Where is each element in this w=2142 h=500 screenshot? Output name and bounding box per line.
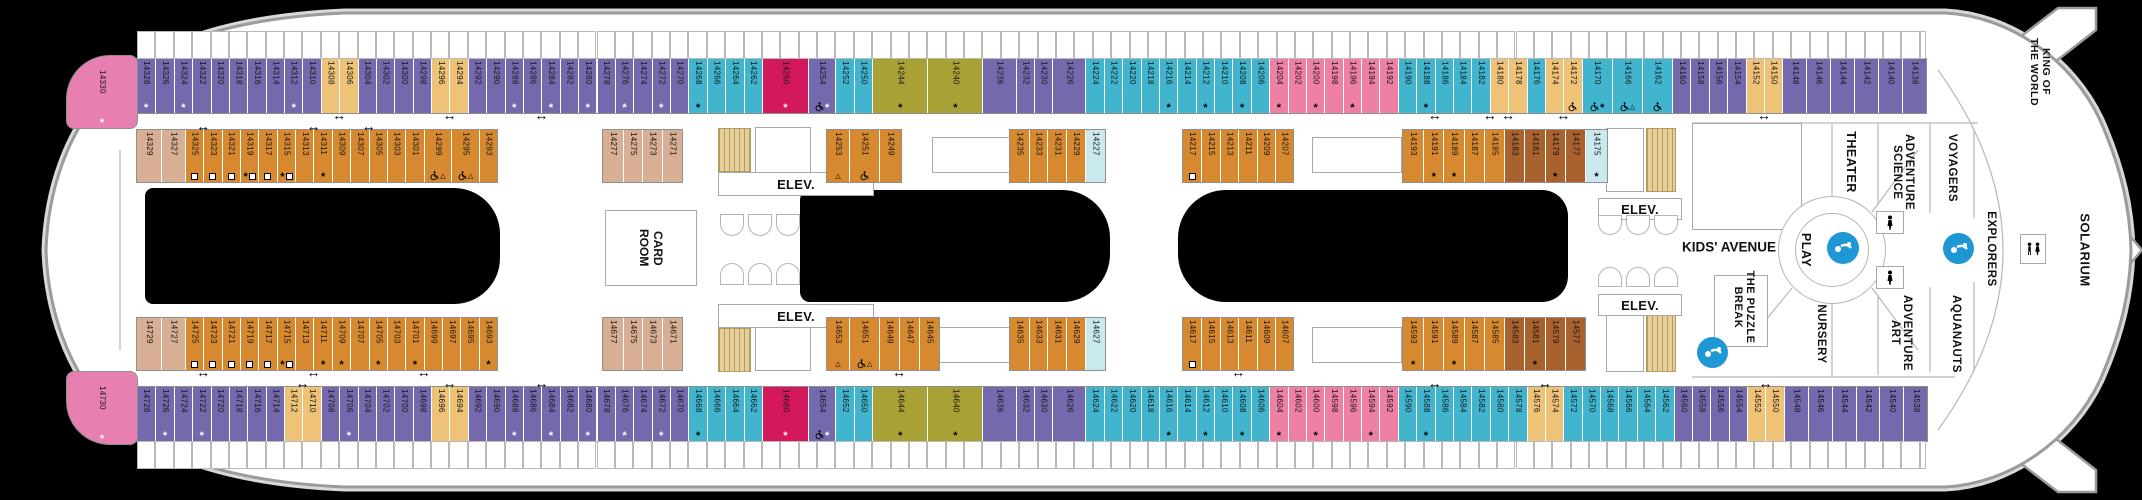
cabin-14566[interactable]: 14566 xyxy=(1618,387,1636,441)
cabin-14622[interactable]: 14622 xyxy=(1104,387,1122,441)
cabin-14184[interactable]: 14184 xyxy=(1453,59,1471,113)
cabin-14546[interactable]: 14546 xyxy=(1808,387,1832,441)
cabin-14277[interactable]: 14277 xyxy=(603,130,623,182)
cabin-14307[interactable]: 14307 xyxy=(350,130,368,182)
cabin-14647[interactable]: 14647 xyxy=(899,318,919,370)
cabin-14548[interactable]: 14548 xyxy=(1784,387,1808,441)
cabin-14313[interactable]: 14313 xyxy=(295,130,313,182)
cabin-14668[interactable]: 14668* xyxy=(688,387,706,441)
cabin-14721[interactable]: 14721 xyxy=(222,318,240,370)
cabin-14224[interactable]: 14224 xyxy=(1085,59,1103,113)
cabin-14156[interactable]: 14156 xyxy=(1709,59,1727,113)
cabin-14626[interactable]: 14626 xyxy=(1052,387,1085,441)
cabin-14604[interactable]: 14604* xyxy=(1269,387,1287,441)
cabin-14230[interactable]: 14230 xyxy=(1034,59,1052,113)
cabin-14700[interactable]: 14700 xyxy=(394,387,412,441)
cabin-14675[interactable]: 14675 xyxy=(623,318,643,370)
cabin-14186[interactable]: 14186 xyxy=(1435,59,1453,113)
balcony-cell xyxy=(1497,31,1515,59)
cabin-14148[interactable]: 14148 xyxy=(1782,59,1806,113)
cabin-14578[interactable]: 14578 xyxy=(1508,387,1526,441)
cabin-14542[interactable]: 14542 xyxy=(1856,387,1880,441)
cabin-14305[interactable]: 14305 xyxy=(369,130,387,182)
balcony-cell xyxy=(1736,441,1754,469)
cabin-14189[interactable]: 14189* xyxy=(1443,130,1463,182)
cabin-14660[interactable]: 14660* xyxy=(762,387,808,441)
cabin-14694[interactable]: 14694 xyxy=(449,387,467,441)
asterisk-marker: * xyxy=(783,432,787,440)
cabin-14704[interactable]: 14704 xyxy=(358,387,376,441)
cabin-14209[interactable]: 14209 xyxy=(1257,130,1275,182)
cabin-14538[interactable]: 14538 xyxy=(1903,387,1927,441)
cabin-14633[interactable]: 14633 xyxy=(1029,318,1048,370)
cabin-14328[interactable]: 14328* xyxy=(137,59,155,113)
cabin-14323[interactable]: 14323 xyxy=(203,130,221,182)
cabin-14311[interactable]: 14311* xyxy=(313,130,331,182)
cabin-14589[interactable]: 14589* xyxy=(1443,318,1463,370)
cabin-14653[interactable]: 14653△ xyxy=(827,318,849,370)
cabin-14722[interactable]: 14722* xyxy=(192,387,210,441)
cabin-number: 14254 xyxy=(818,61,826,85)
balcony-cell xyxy=(1405,31,1423,59)
cabin-14254[interactable]: 14254* xyxy=(808,59,836,113)
cabin-14260[interactable]: 14260* xyxy=(762,59,808,113)
cabin-14273[interactable]: 14273 xyxy=(642,130,662,182)
cabin-14222[interactable]: 14222 xyxy=(1104,59,1122,113)
cabin-14701[interactable]: 14701* xyxy=(405,318,423,370)
cabin-14709[interactable]: 14709* xyxy=(332,318,350,370)
cabin-14278[interactable]: 14278 xyxy=(597,59,615,113)
cabin-number: 14188 xyxy=(1422,61,1430,85)
cabin-14706[interactable]: 14706* xyxy=(339,387,357,441)
cabin-14596[interactable]: 14596 xyxy=(1343,387,1361,441)
cabin-14309[interactable]: 14309 xyxy=(332,130,350,182)
cabin-14183[interactable]: 14183 xyxy=(1504,130,1524,182)
cabin-14321[interactable]: 14321 xyxy=(222,130,240,182)
cabin-14577[interactable]: 14577 xyxy=(1565,318,1585,370)
cabin-14556[interactable]: 14556 xyxy=(1710,387,1728,441)
cabin-14624[interactable]: 14624 xyxy=(1085,387,1103,441)
cabin-14708[interactable]: 14708 xyxy=(321,387,339,441)
cabin-14226[interactable]: 14226 xyxy=(1052,59,1085,113)
cabin-14298[interactable]: 14298 xyxy=(413,59,431,113)
cabin-14215[interactable]: 14215 xyxy=(1201,130,1219,182)
cabin-14695[interactable]: 14695 xyxy=(460,318,478,370)
cabin-14249[interactable]: 14249 xyxy=(879,130,901,182)
cabin-14725[interactable]: 14725 xyxy=(185,318,203,370)
connecting-door-arrow: ↔ xyxy=(306,120,320,132)
cabin-14684[interactable]: 14684* xyxy=(541,387,559,441)
cabin-14193[interactable]: 14193 xyxy=(1403,130,1423,182)
cabin-14306[interactable]: 14306 xyxy=(339,59,357,113)
cabin-number: 14678 xyxy=(602,389,610,413)
cabin-14540[interactable]: 14540 xyxy=(1879,387,1903,441)
cabin-14674[interactable]: 14674 xyxy=(633,387,651,441)
cabin-14726[interactable]: 14726* xyxy=(155,387,173,441)
cabin-14144[interactable]: 14144 xyxy=(1830,59,1854,113)
cabin-14316[interactable]: 14316 xyxy=(247,59,265,113)
cabin-14717[interactable]: 14717 xyxy=(258,318,276,370)
cabin-14615[interactable]: 14615 xyxy=(1201,318,1219,370)
cabin-14176[interactable]: 14176 xyxy=(1527,59,1545,113)
cabin-14180[interactable]: 14180 xyxy=(1490,59,1508,113)
cabin-14322[interactable]: 14322 xyxy=(192,59,210,113)
cabin-14271[interactable]: 14271 xyxy=(662,130,682,182)
cabin-14617[interactable]: 14617 xyxy=(1183,318,1201,370)
cabin-14583[interactable]: 14583 xyxy=(1504,318,1524,370)
cabin-14618[interactable]: 14618 xyxy=(1141,387,1159,441)
balcony-cell xyxy=(1130,441,1148,469)
cabin-14614[interactable]: 14614 xyxy=(1177,387,1195,441)
restroom-icon xyxy=(1876,211,1904,234)
cabin-14214[interactable]: 14214 xyxy=(1177,59,1195,113)
cabin-14210[interactable]: 14210 xyxy=(1214,59,1232,113)
cabin-14288[interactable]: 14288* xyxy=(505,59,523,113)
cabin-14191[interactable]: 14191* xyxy=(1423,130,1443,182)
cabin-14586[interactable]: 14586 xyxy=(1435,387,1453,441)
cabin-14680[interactable]: 14680* xyxy=(578,387,596,441)
cabin-14550[interactable]: 14550 xyxy=(1765,387,1783,441)
cabin-14177[interactable]: 14177 xyxy=(1565,130,1585,182)
cabin-14645[interactable]: 14645 xyxy=(919,318,939,370)
cabin-14315[interactable]: 14315* xyxy=(277,130,295,182)
cabin-14666[interactable]: 14666 xyxy=(707,387,725,441)
cabin-14211[interactable]: 14211 xyxy=(1238,130,1256,182)
cabin-number: 14729 xyxy=(145,320,153,344)
cabin-14572[interactable]: 14572 xyxy=(1563,387,1581,441)
cabin-14678[interactable]: 14678 xyxy=(597,387,615,441)
cabin-14627[interactable]: 14627 xyxy=(1085,318,1105,370)
cabin-14174[interactable]: 14174 xyxy=(1545,59,1563,113)
cabin-14582[interactable]: 14582 xyxy=(1471,387,1489,441)
cabin-14274[interactable]: 14274 xyxy=(633,59,651,113)
cabin-14314[interactable]: 14314 xyxy=(266,59,284,113)
cabin-number: 14211 xyxy=(1244,132,1252,155)
cabin-14317[interactable]: 14317 xyxy=(258,130,276,182)
cabin-14206[interactable]: 14206 xyxy=(1251,59,1269,113)
cabin-14698[interactable]: 14698 xyxy=(413,387,431,441)
cabin-14602[interactable]: 14602 xyxy=(1288,387,1306,441)
cabin-14664[interactable]: 14664 xyxy=(725,387,743,441)
cabin-14303[interactable]: 14303 xyxy=(387,130,405,182)
cabin-14673[interactable]: 14673 xyxy=(642,318,662,370)
cabin-14699[interactable]: 14699 xyxy=(424,318,442,370)
cabin-14202[interactable]: 14202 xyxy=(1288,59,1306,113)
cabin-number: 14671 xyxy=(668,320,676,344)
cabin-14320[interactable]: 14320 xyxy=(211,59,229,113)
cabin-14140[interactable]: 14140 xyxy=(1878,59,1902,113)
cabin-14290[interactable]: 14290 xyxy=(486,59,504,113)
cabin-14720[interactable]: 14720 xyxy=(211,387,229,441)
balcony-cell xyxy=(1773,441,1791,469)
cabin-14592[interactable]: 14592 xyxy=(1379,387,1397,441)
cabin-14584[interactable]: 14584 xyxy=(1453,387,1471,441)
cabin-14162[interactable]: 14162 xyxy=(1642,59,1672,113)
cabin-14233[interactable]: 14233 xyxy=(1029,130,1048,182)
cabin-14611[interactable]: 14611 xyxy=(1238,318,1256,370)
cabin-14713[interactable]: 14713 xyxy=(295,318,313,370)
cabin-14702[interactable]: 14702 xyxy=(376,387,394,441)
cabin-14154[interactable]: 14154 xyxy=(1727,59,1745,113)
cabin-14231[interactable]: 14231 xyxy=(1047,130,1066,182)
cabin-14217[interactable]: 14217 xyxy=(1183,130,1201,182)
cabin-14194[interactable]: 14194 xyxy=(1361,59,1379,113)
balcony-cell xyxy=(1571,31,1589,59)
cabin-14185[interactable]: 14185 xyxy=(1484,130,1504,182)
cabin-14213[interactable]: 14213 xyxy=(1220,130,1238,182)
cabin-14576[interactable]: 14576 xyxy=(1527,387,1545,441)
cabin-14610[interactable]: 14610 xyxy=(1214,387,1232,441)
cabin-14727[interactable]: 14727 xyxy=(161,318,185,370)
cabin-14632[interactable]: 14632 xyxy=(1016,387,1034,441)
cabin-14640[interactable]: 14640* xyxy=(927,387,982,441)
cabin-14606[interactable]: 14606 xyxy=(1251,387,1269,441)
cabin-14235[interactable]: 14235 xyxy=(1010,130,1029,182)
balcony-cell xyxy=(174,441,192,469)
cabin-14570[interactable]: 14570 xyxy=(1582,387,1600,441)
cabin-14286[interactable]: 14286 xyxy=(523,59,541,113)
cabin-14299[interactable]: 14299△ xyxy=(424,130,452,182)
balcony-cell xyxy=(597,441,615,469)
booth-seat xyxy=(720,263,744,285)
cabin-14295[interactable]: 14295△ xyxy=(451,130,479,182)
cabin-14593[interactable]: 14593* xyxy=(1403,318,1423,370)
cabin-14329[interactable]: 14329 xyxy=(137,130,161,182)
cabin-14300[interactable]: 14300 xyxy=(394,59,412,113)
cabin-14600[interactable]: 14600* xyxy=(1306,387,1324,441)
cabin-14723[interactable]: 14723 xyxy=(203,318,221,370)
cabin-14200[interactable]: 14200* xyxy=(1306,59,1324,113)
cabin-14649[interactable]: 14649 xyxy=(879,318,899,370)
cabin-14644[interactable]: 14644* xyxy=(872,387,927,441)
cabin-14719[interactable]: 14719 xyxy=(240,318,258,370)
cabin-14181[interactable]: 14181 xyxy=(1524,130,1544,182)
cabin-14253[interactable]: 14253△ xyxy=(827,130,849,182)
cabin-14292[interactable]: 14292 xyxy=(468,59,486,113)
cabin-14711[interactable]: 14711* xyxy=(313,318,331,370)
cabin-14591[interactable]: 14591 xyxy=(1423,318,1443,370)
cabin-14220[interactable]: 14220 xyxy=(1122,59,1140,113)
cabin-14318[interactable]: 14318 xyxy=(229,59,247,113)
cabin-14152[interactable]: 14152 xyxy=(1746,59,1764,113)
cabin-14564[interactable]: 14564 xyxy=(1637,387,1655,441)
cabin-14650[interactable]: 14650 xyxy=(854,387,872,441)
cabin-14672[interactable]: 14672* xyxy=(652,387,670,441)
cabin-14654[interactable]: 14654* xyxy=(808,387,836,441)
cabin-14544[interactable]: 14544 xyxy=(1832,387,1856,441)
cabin-14138[interactable]: 14138 xyxy=(1902,59,1926,113)
cabin-14280[interactable]: 14280* xyxy=(578,59,596,113)
cabin-14170[interactable]: 14170* xyxy=(1582,59,1612,113)
cabin-14590[interactable]: 14590 xyxy=(1398,387,1416,441)
cabin-14172[interactable]: 14172 xyxy=(1563,59,1581,113)
cabin-14304[interactable]: 14304 xyxy=(358,59,376,113)
cabin-14616[interactable]: 14616* xyxy=(1159,387,1177,441)
cabin-14207[interactable]: 14207 xyxy=(1275,130,1293,182)
cabin-14216[interactable]: 14216* xyxy=(1159,59,1177,113)
cabin-14227[interactable]: 14227 xyxy=(1085,130,1105,182)
cabin-14631[interactable]: 14631 xyxy=(1047,318,1066,370)
cabin-14275[interactable]: 14275 xyxy=(623,130,643,182)
cabin-14270[interactable]: 14270 xyxy=(670,59,688,113)
cabin-14325[interactable]: 14325 xyxy=(185,130,203,182)
cabin-14187[interactable]: 14187 xyxy=(1464,130,1484,182)
cabin-14728[interactable]: 14728 xyxy=(137,387,155,441)
cabin-14301[interactable]: 14301 xyxy=(405,130,423,182)
cabin-14598[interactable]: 14598 xyxy=(1324,387,1342,441)
cabin-14327[interactable]: 14327 xyxy=(161,130,185,182)
cabin-14142[interactable]: 14142 xyxy=(1854,59,1878,113)
cabin-14250[interactable]: 14250 xyxy=(854,59,872,113)
cabin-number: 14330 xyxy=(98,70,106,94)
cabin-14608[interactable]: 14608* xyxy=(1232,387,1250,441)
cabin-14218[interactable]: 14218 xyxy=(1141,59,1159,113)
cabin-14296[interactable]: 14296 xyxy=(431,59,449,113)
cabin-14179[interactable]: 14179* xyxy=(1545,130,1565,182)
cabin-14609[interactable]: 14609 xyxy=(1257,318,1275,370)
cabin-14585[interactable]: 14585 xyxy=(1484,318,1504,370)
cabin-14204[interactable]: 14204* xyxy=(1269,59,1287,113)
cabin-14651[interactable]: 14651△ xyxy=(849,318,879,370)
cabin-14264[interactable]: 14264 xyxy=(725,59,743,113)
cabin-14636[interactable]: 14636 xyxy=(982,387,1015,441)
cabin-14251[interactable]: 14251 xyxy=(849,130,879,182)
cabin-14558[interactable]: 14558 xyxy=(1692,387,1710,441)
cabin-14693[interactable]: 14693* xyxy=(479,318,497,370)
cabin-14284[interactable]: 14284* xyxy=(541,59,559,113)
cabin-14697[interactable]: 14697 xyxy=(442,318,460,370)
cabin-14229[interactable]: 14229 xyxy=(1066,130,1085,182)
cabin-14588[interactable]: 14588* xyxy=(1416,387,1434,441)
cabin-number: 14709 xyxy=(338,320,346,344)
cabin-14236[interactable]: 14236 xyxy=(982,59,1015,113)
balcony-cell xyxy=(1074,31,1092,59)
cabin-14308[interactable]: 14308 xyxy=(321,59,339,113)
cabin-14690[interactable]: 14690 xyxy=(486,387,504,441)
cabin-14594[interactable]: 14594* xyxy=(1361,387,1379,441)
cabin-14579[interactable]: 14579 xyxy=(1545,318,1565,370)
cabin-14607[interactable]: 14607 xyxy=(1275,318,1293,370)
cabin-14276[interactable]: 14276* xyxy=(615,59,633,113)
cabin-14146[interactable]: 14146 xyxy=(1806,59,1830,113)
balcony-cell xyxy=(1130,31,1148,59)
cabin-14635[interactable]: 14635 xyxy=(1010,318,1029,370)
cabin-14192[interactable]: 14192 xyxy=(1379,59,1397,113)
cabin-14326[interactable]: 14326 xyxy=(155,59,173,113)
cabin-number: 14235 xyxy=(1015,132,1023,156)
cabin-14282[interactable]: 14282 xyxy=(560,59,578,113)
cabin-number: 14713 xyxy=(301,320,309,344)
cabin-14293[interactable]: 14293 xyxy=(479,130,497,182)
cabin-14705[interactable]: 14705* xyxy=(369,318,387,370)
cabin-14670[interactable]: 14670 xyxy=(670,387,688,441)
cabin-14724[interactable]: 14724 xyxy=(174,387,192,441)
cabin-14552[interactable]: 14552 xyxy=(1747,387,1765,441)
cabin-14212[interactable]: 14212* xyxy=(1196,59,1214,113)
cabin-14677[interactable]: 14677 xyxy=(603,318,623,370)
cabin-14714[interactable]: 14714 xyxy=(266,387,284,441)
cabin-14587[interactable]: 14587 xyxy=(1464,318,1484,370)
cabin-14252[interactable]: 14252 xyxy=(835,59,853,113)
cabin-14729[interactable]: 14729 xyxy=(137,318,161,370)
cabin-14612[interactable]: 14612* xyxy=(1196,387,1214,441)
cabin-14562[interactable]: 14562 xyxy=(1655,387,1673,441)
cabin-number: 14299 xyxy=(434,132,442,156)
cabin-14268[interactable]: 14268* xyxy=(688,59,706,113)
cabin-14676[interactable]: 14676* xyxy=(615,387,633,441)
cabin-14158[interactable]: 14158 xyxy=(1690,59,1708,113)
cabin-14630[interactable]: 14630 xyxy=(1034,387,1052,441)
cabin-14580[interactable]: 14580 xyxy=(1490,387,1508,441)
cabin-14150[interactable]: 14150 xyxy=(1764,59,1782,113)
cabin-14302[interactable]: 14302 xyxy=(376,59,394,113)
cabin-number: 14566 xyxy=(1624,389,1632,413)
cabin-14568[interactable]: 14568 xyxy=(1600,387,1618,441)
cabin-number: 14558 xyxy=(1698,389,1706,413)
cabin-14560[interactable]: 14560 xyxy=(1674,387,1692,441)
cabin-14310[interactable]: 14310 xyxy=(302,59,320,113)
cabin-14240[interactable]: 14240* xyxy=(927,59,982,113)
cabin-14208[interactable]: 14208* xyxy=(1232,59,1250,113)
cabin-14662[interactable]: 14662 xyxy=(744,387,762,441)
cabin-14613[interactable]: 14613 xyxy=(1220,318,1238,370)
cabin-14652[interactable]: 14652 xyxy=(835,387,853,441)
cabin-14262[interactable]: 14262 xyxy=(744,59,762,113)
cabin-14682[interactable]: 14682 xyxy=(560,387,578,441)
cabin-14574[interactable]: 14574 xyxy=(1545,387,1563,441)
cabin-14266[interactable]: 14266 xyxy=(707,59,725,113)
cabin-14182[interactable]: 14182 xyxy=(1471,59,1489,113)
cabin-14718[interactable]: 14718 xyxy=(229,387,247,441)
cabin-14730[interactable]: 14730* xyxy=(66,371,138,445)
cabin-14671[interactable]: 14671 xyxy=(662,318,682,370)
card-room-label: CARD xyxy=(651,229,665,266)
cabin-14707[interactable]: 14707 xyxy=(350,318,368,370)
cabin-14166[interactable]: 14166△ xyxy=(1612,59,1642,113)
cabin-14244[interactable]: 14244* xyxy=(872,59,927,113)
cabin-number: 14610 xyxy=(1220,389,1228,413)
cabin-14692[interactable]: 14692 xyxy=(468,387,486,441)
asterisk-marker: * xyxy=(280,361,284,369)
cabin-14688[interactable]: 14688* xyxy=(505,387,523,441)
cabin-14716[interactable]: 14716 xyxy=(247,387,265,441)
cabin-14554[interactable]: 14554 xyxy=(1729,387,1747,441)
cabin-14178[interactable]: 14178 xyxy=(1508,59,1526,113)
cabin-14703[interactable]: 14703 xyxy=(387,318,405,370)
cabin-14232[interactable]: 14232 xyxy=(1016,59,1034,113)
cabin-14196[interactable]: 14196* xyxy=(1343,59,1361,113)
cabin-14198[interactable]: 14198 xyxy=(1324,59,1342,113)
cabin-14710[interactable]: 14710 xyxy=(302,387,320,441)
cabin-14160[interactable]: 14160 xyxy=(1672,59,1690,113)
cabin-14175[interactable]: 14175* xyxy=(1585,130,1607,182)
cabin-number: 14288 xyxy=(510,61,518,85)
cabin-14190[interactable]: 14190 xyxy=(1398,59,1416,113)
cabin-14324[interactable]: 14324* xyxy=(174,59,192,113)
cabin-14581[interactable]: 14581* xyxy=(1524,318,1544,370)
cabin-14715[interactable]: 14715* xyxy=(277,318,295,370)
cabin-14686[interactable]: 14686 xyxy=(523,387,541,441)
cabin-14629[interactable]: 14629 xyxy=(1066,318,1085,370)
cabin-14272[interactable]: 14272* xyxy=(652,59,670,113)
cabin-14696[interactable]: 14696 xyxy=(431,387,449,441)
cabin-14188[interactable]: 14188* xyxy=(1416,59,1434,113)
cabin-14712[interactable]: 14712 xyxy=(284,387,302,441)
cabin-14620[interactable]: 14620 xyxy=(1122,387,1140,441)
cabin-14312[interactable]: 14312* xyxy=(284,59,302,113)
cabin-14294[interactable]: 14294 xyxy=(449,59,467,113)
cabin-14319[interactable]: 14319* xyxy=(240,130,258,182)
